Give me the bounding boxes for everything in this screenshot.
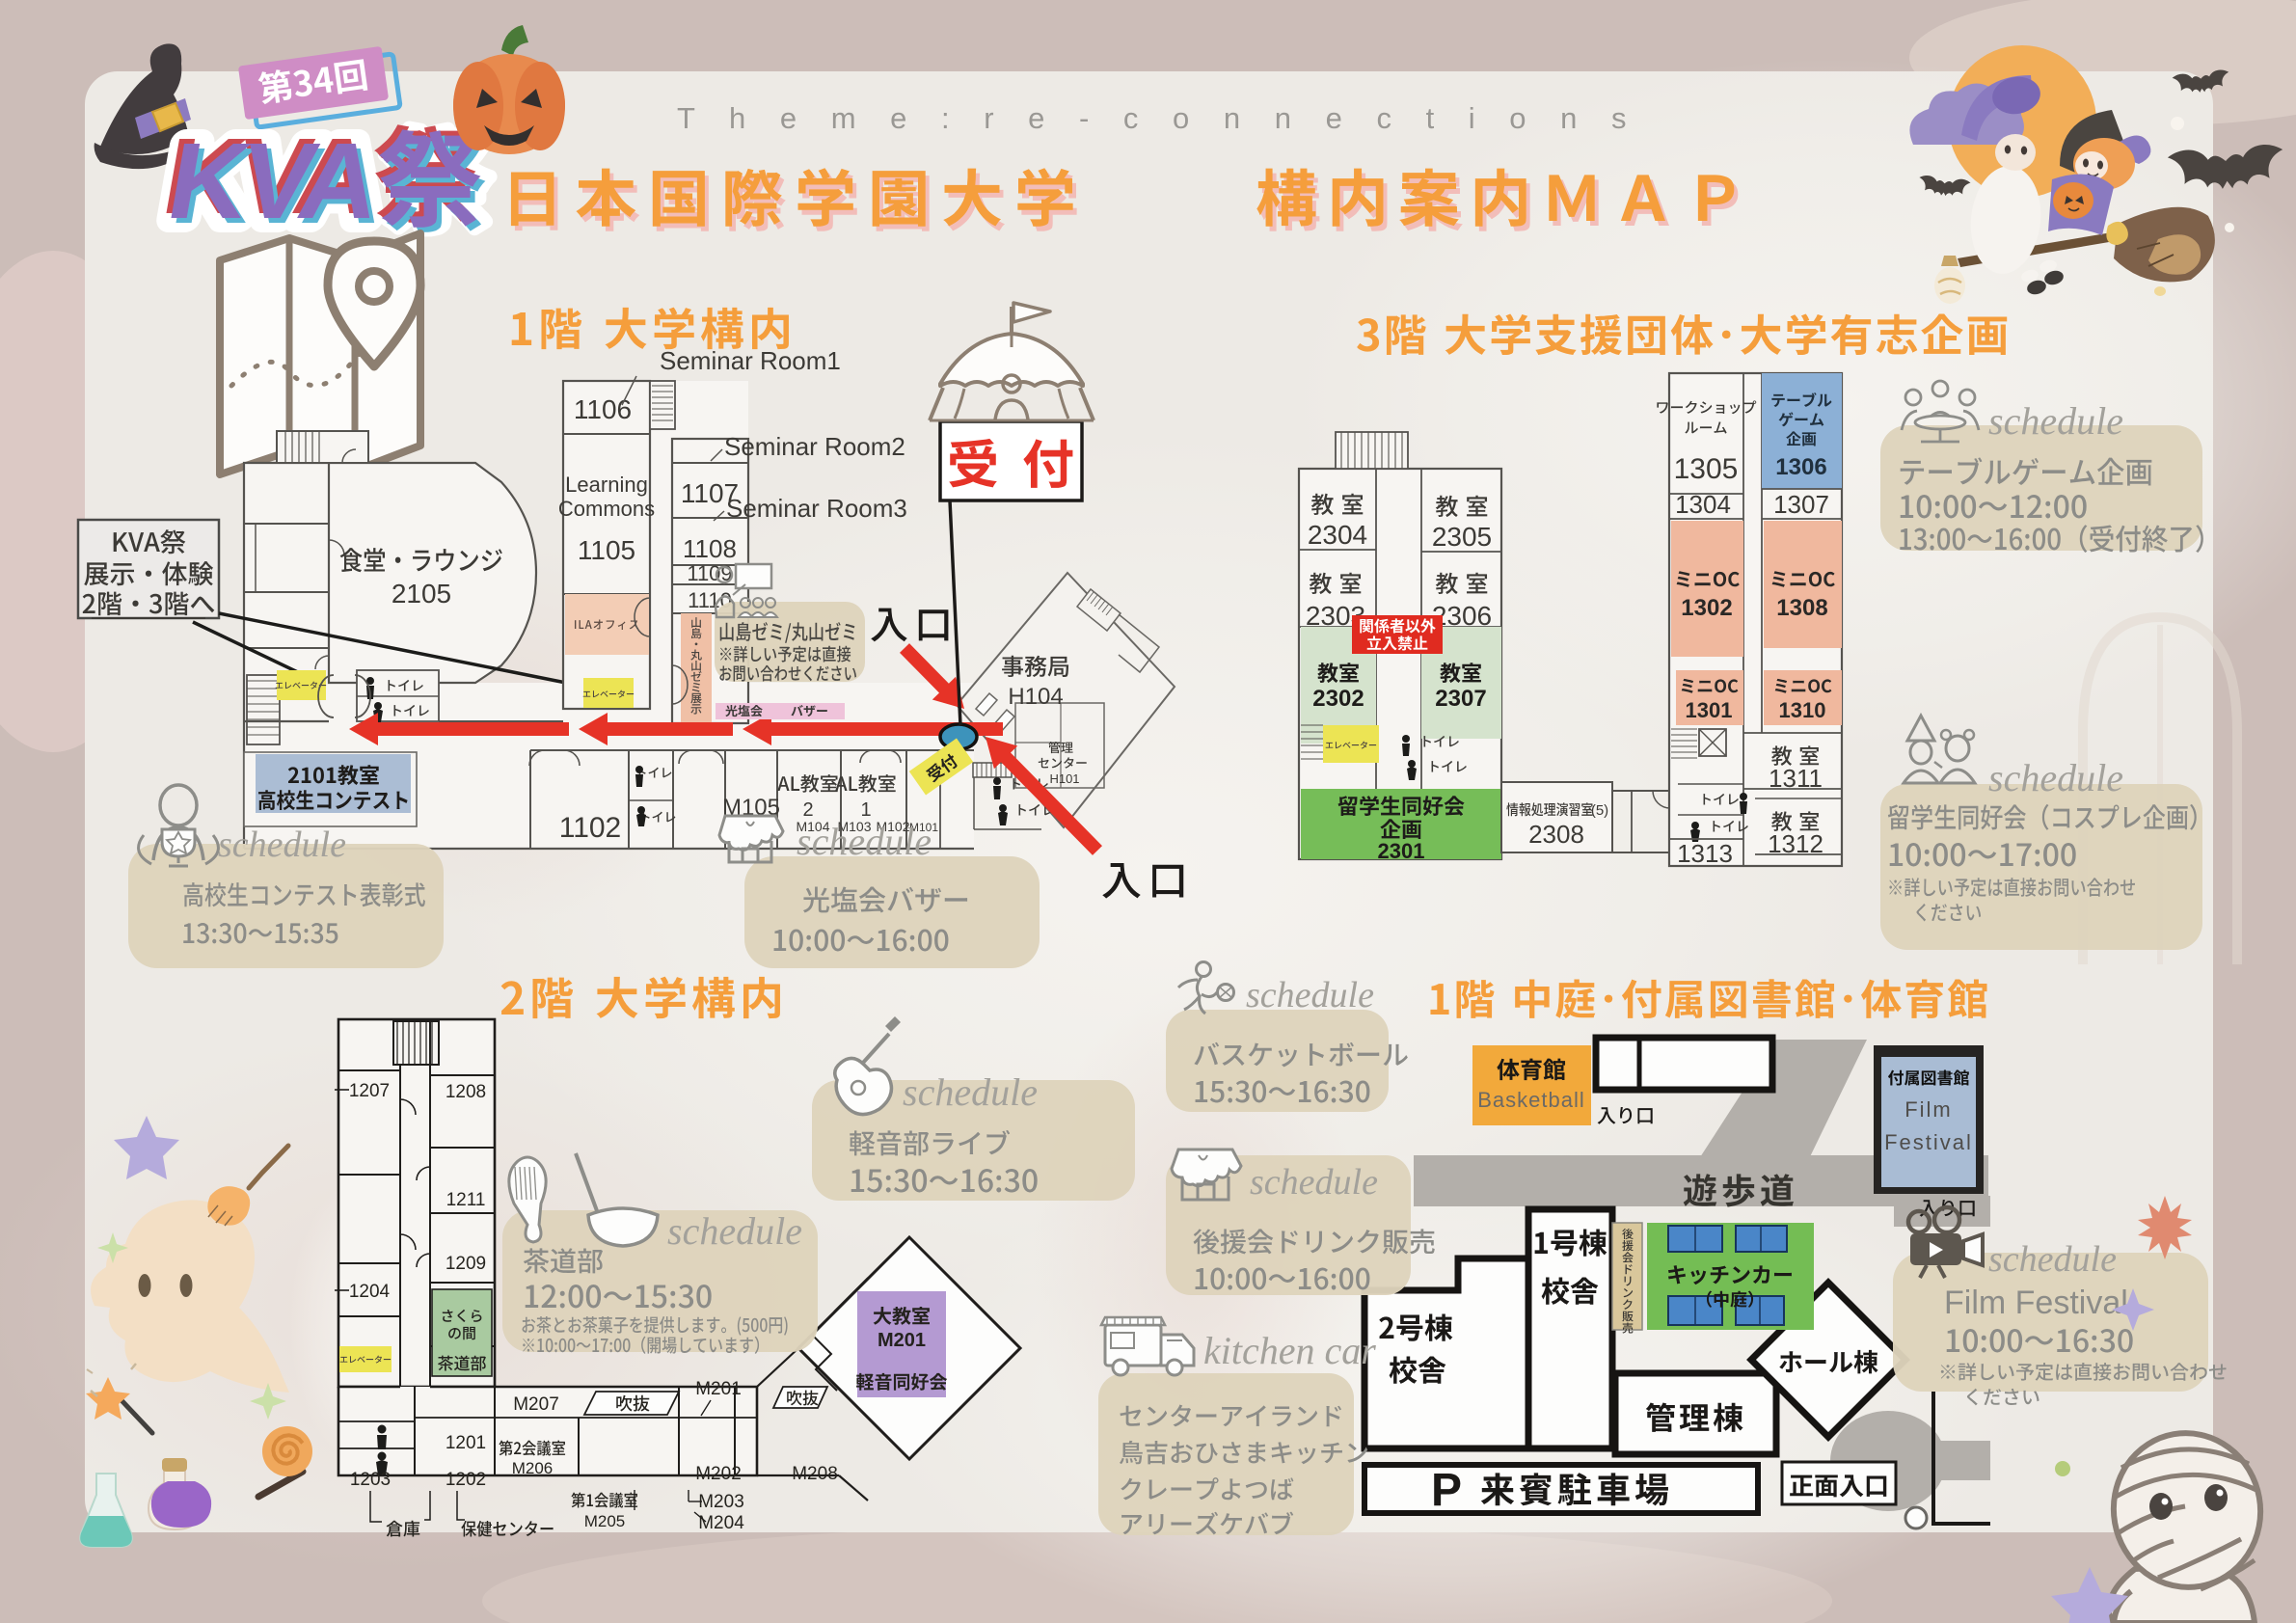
- svg-text:1305: 1305: [1674, 453, 1739, 485]
- svg-text:Film Festival: Film Festival: [1944, 1285, 2128, 1321]
- svg-text:Basketball: Basketball: [1477, 1088, 1585, 1112]
- svg-text:M204: M204: [698, 1513, 744, 1533]
- svg-text:1211: 1211: [446, 1190, 486, 1210]
- svg-text:2304: 2304: [1308, 520, 1367, 550]
- svg-text:(5): (5): [1591, 802, 1608, 819]
- svg-text:1108: 1108: [683, 534, 737, 563]
- svg-text:1204: 1204: [349, 1282, 391, 1302]
- svg-text:2: 2: [802, 799, 813, 821]
- svg-text:1106: 1106: [574, 394, 632, 424]
- svg-text:1207: 1207: [349, 1081, 390, 1101]
- svg-text:M205: M205: [584, 1512, 626, 1530]
- svg-text:Learning: Learning: [565, 473, 648, 497]
- svg-text:schedule: schedule: [903, 1070, 1038, 1114]
- svg-text:Commons: Commons: [558, 497, 655, 521]
- svg-text:1312: 1312: [1768, 829, 1823, 858]
- svg-text:2305: 2305: [1432, 522, 1492, 552]
- svg-text:M203: M203: [698, 1492, 744, 1512]
- svg-text:Seminar Room3: Seminar Room3: [726, 494, 907, 523]
- svg-text:2301: 2301: [1378, 839, 1425, 863]
- svg-text:Seminar Room2: Seminar Room2: [724, 432, 905, 461]
- svg-text:P: P: [1431, 1465, 1462, 1516]
- svg-text:1313: 1313: [1677, 839, 1733, 868]
- svg-text:1306: 1306: [1775, 454, 1826, 480]
- svg-text:1102: 1102: [559, 812, 622, 844]
- svg-text:1307: 1307: [1773, 490, 1829, 519]
- svg-text:1202: 1202: [446, 1470, 486, 1490]
- svg-text:M202: M202: [695, 1464, 742, 1484]
- svg-text:T h e m e : r e - c o n n e c: T h e m e : r e - c o n n e c t i o n s: [677, 101, 1639, 135]
- svg-text:KVA: KVA: [160, 121, 388, 241]
- svg-text:M201: M201: [695, 1379, 742, 1399]
- svg-text:Film: Film: [1904, 1097, 1953, 1122]
- svg-text:1: 1: [860, 799, 871, 821]
- svg-text:schedule: schedule: [797, 820, 932, 863]
- svg-text:1209: 1209: [446, 1254, 486, 1274]
- svg-text:schedule: schedule: [1246, 975, 1374, 1015]
- svg-text:1203: 1203: [350, 1470, 391, 1490]
- svg-text:2302: 2302: [1312, 686, 1364, 712]
- svg-text:2308: 2308: [1528, 820, 1584, 849]
- svg-text:H101: H101: [1049, 771, 1079, 786]
- svg-text:schedule: schedule: [218, 825, 346, 865]
- svg-text:2307: 2307: [1435, 686, 1486, 712]
- svg-text:1208: 1208: [446, 1082, 486, 1102]
- svg-text:2105: 2105: [392, 579, 451, 609]
- svg-text:M207: M207: [513, 1394, 559, 1415]
- svg-text:schedule: schedule: [1988, 1239, 2117, 1280]
- svg-text:1311: 1311: [1769, 764, 1823, 793]
- svg-text:M206: M206: [512, 1459, 554, 1477]
- svg-text:1304: 1304: [1675, 490, 1731, 519]
- svg-text:1308: 1308: [1776, 595, 1827, 621]
- svg-text:schedule: schedule: [1988, 399, 2123, 443]
- svg-text:H104: H104: [1008, 684, 1063, 710]
- svg-text:kitchen car: kitchen car: [1203, 1329, 1376, 1372]
- svg-text:schedule: schedule: [1988, 756, 2123, 799]
- svg-text:Festival: Festival: [1884, 1130, 1973, 1154]
- svg-text:Seminar Room1: Seminar Room1: [660, 346, 841, 375]
- svg-text:1201: 1201: [446, 1433, 486, 1453]
- svg-text:schedule: schedule: [1250, 1162, 1378, 1203]
- svg-text:1301: 1301: [1686, 698, 1733, 722]
- svg-text:1302: 1302: [1681, 595, 1732, 621]
- svg-text:1310: 1310: [1779, 698, 1826, 722]
- svg-text:1105: 1105: [578, 535, 635, 565]
- svg-text:M208: M208: [792, 1464, 838, 1484]
- svg-text:M201: M201: [878, 1330, 926, 1351]
- svg-text:schedule: schedule: [667, 1209, 802, 1253]
